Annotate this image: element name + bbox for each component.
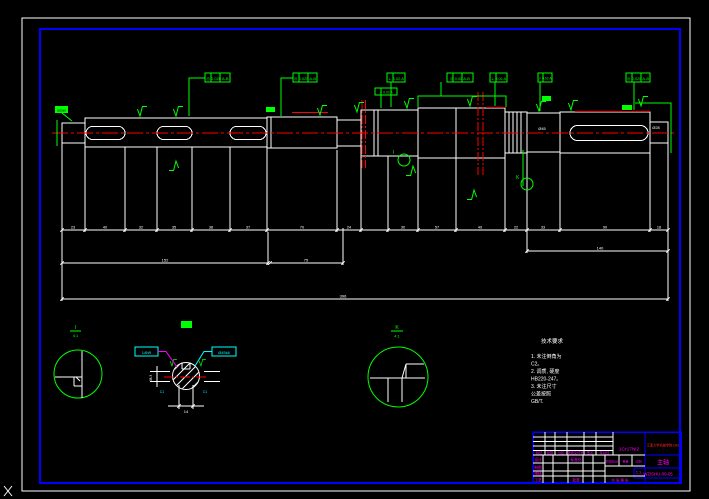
note-line: 1. 未注倒角为 <box>531 353 562 360</box>
left-end-dim-value: Ø25k6 <box>57 108 66 112</box>
roughness-icon <box>467 190 477 200</box>
section-dim-box-right-value: Ø45k6 <box>218 350 231 355</box>
detail-2-label: K <box>395 325 399 331</box>
dim-value: 49 <box>478 226 482 230</box>
detail-balloon-2-label: K <box>516 175 520 181</box>
note-line: HB220-247。 <box>531 377 561 383</box>
keyway-width-dim: 14 <box>184 409 189 414</box>
note-line: 公差按照 <box>531 391 551 398</box>
dim-value: 40 <box>103 226 107 230</box>
rev-col-label: 更改文件号 <box>568 450 584 455</box>
crosshair-cursor-icon[interactable] <box>4 486 12 496</box>
sig-row-label: 设计 <box>534 457 542 462</box>
gdt-frame-1: ◎ 0.025 A-B <box>206 76 229 81</box>
gdt-frame-2: ◎ 0.025 A-B <box>294 76 317 81</box>
keyway-section-view: 14 38.3 14N9 Ø45k6 C1 C1 <box>135 347 236 414</box>
detail-1-label: I <box>75 325 76 331</box>
school-name: 江南大学机械学院1342 <box>647 443 680 448</box>
centerlines <box>52 92 676 175</box>
sheet-note: 共 张 第 张 <box>612 478 629 483</box>
dim-value: 23 <box>71 226 75 230</box>
sig-row-label: 工艺 <box>534 477 542 482</box>
outer-border <box>22 18 690 491</box>
gdt-frame-7: ◎ 0.025 A-B <box>627 76 650 81</box>
part-name: 主轴 <box>657 459 669 467</box>
dim-value: 38 <box>209 226 213 230</box>
dim-value: 22 <box>514 226 518 230</box>
detail-circle-1 <box>54 350 102 398</box>
dim-mid-1: 152 <box>162 258 169 263</box>
note-line: GB/T. <box>531 399 544 405</box>
roughness-icon <box>169 161 179 171</box>
sig-row-label-2: 标准化 <box>570 457 582 462</box>
roughness-icon <box>406 166 416 176</box>
rev-col-label: 签名 <box>587 450 593 455</box>
sig-row-label-2: 批准 <box>572 477 580 482</box>
dim-mid-3: 140 <box>597 246 604 251</box>
chamfer-note-left: C1 <box>160 390 165 394</box>
scale-label: 比例 <box>635 459 641 464</box>
roughness-icon <box>467 97 477 107</box>
section-hatching <box>165 355 207 397</box>
scale-value: 1:1 <box>636 470 642 475</box>
gdt-frame-5: ⊥ 0.02 A <box>491 77 507 81</box>
section-dim-box-left-value: 14N9 <box>142 350 152 355</box>
rev-col-label: 分区 <box>558 450 565 455</box>
dim-value: 35 <box>172 226 176 230</box>
gdt-frame-4: ◎ 0.02 A-B <box>450 76 470 81</box>
note-line: 2. 调质, 硬度 <box>531 368 559 375</box>
sig-row-label: 审核 <box>534 471 542 476</box>
technical-notes: 技术要求 1. 未注倒角为 C2。 2. 调质, 硬度 HB220-247。 3… <box>531 337 564 405</box>
dim-value: 57 <box>435 226 439 230</box>
dim-value: 70 <box>300 226 304 230</box>
roughness-icon <box>568 101 578 111</box>
note-line: 3. 未注尺寸 <box>531 383 557 390</box>
roughness-icon <box>317 106 327 116</box>
span-dimension-bracket <box>418 96 506 107</box>
roughness-icon <box>404 99 414 109</box>
dim-hub: Ø45 <box>538 126 546 131</box>
notes-title: 技术要求 <box>541 337 564 345</box>
dim-value: 33 <box>541 226 545 230</box>
dim-value: 32 <box>139 226 143 230</box>
green-annotations: Ø25k6 I K <box>55 96 671 328</box>
drawing-border <box>22 18 690 491</box>
rev-col-label: 标记 <box>536 450 543 455</box>
keyway-depth-dim: 38.3 <box>149 375 153 381</box>
detail-1-scale: 4:1 <box>73 333 79 338</box>
detail-view-2: K 4:1 <box>368 325 428 407</box>
detail-balloon-1-label: I <box>393 150 394 156</box>
roughness-icon <box>137 107 147 117</box>
cad-canvas[interactable]: 23 40 32 35 38 37 70 24 30 57 49 22 33 9… <box>0 0 709 499</box>
roughness-icon <box>173 107 183 117</box>
gdt-frame-3: ⊥ 0.02 A <box>388 76 404 81</box>
dim-value: 37 <box>246 226 250 230</box>
sig-row-label: 制图 <box>534 465 542 470</box>
datum-flag <box>622 105 632 110</box>
section-label-flag <box>181 321 192 328</box>
material-value: 1Cr17Ni2 <box>619 447 640 453</box>
rev-col-label: 处数 <box>547 450 554 455</box>
dim-value: 18 <box>657 226 661 230</box>
datum-flag <box>542 96 551 101</box>
roughness-icon <box>199 359 206 366</box>
roughness-icon <box>536 102 546 112</box>
gdt-frames: ◎ 0.025 A-B ◎ 0.025 A-B ⊥ 0.02 A ◎ 0.02 … <box>189 73 650 116</box>
dim-right-end: Ø28 <box>652 125 660 130</box>
cad-viewport[interactable]: 23 40 32 35 38 37 70 24 30 57 49 22 33 9… <box>0 0 709 499</box>
drawing-number: WZISHU-00-05 <box>643 471 673 476</box>
rev-col-label: 年月日 <box>600 450 610 455</box>
title-block: 1Cr17Ni2 江南大学机械学院1342 主轴 WZISHU-00-05 标记… <box>533 432 681 483</box>
dim-value: 90 <box>603 226 607 230</box>
dim-mid-2: 75 <box>304 258 309 263</box>
inner-blue-border <box>40 29 680 483</box>
dimension-chain: 23 40 32 35 38 37 70 24 30 57 49 22 33 9… <box>60 226 669 232</box>
dim-value: 30 <box>401 226 405 230</box>
note-line: C2。 <box>531 362 542 368</box>
dim-overall: 396 <box>340 294 347 299</box>
gdt-frame-6: ↗ 0.02 A <box>538 77 552 81</box>
dim-value: 24 <box>347 226 351 230</box>
detail-view-1: I 4:1 <box>54 325 102 398</box>
roughness-icon <box>354 103 364 113</box>
roughness-icon <box>638 97 648 107</box>
detail-2-scale: 4:1 <box>394 334 400 339</box>
chamfer-note-right: C1 <box>203 390 208 394</box>
cyan-leader <box>195 352 212 367</box>
datum-flag <box>266 107 275 112</box>
stage-label: 阶段标记 <box>606 459 618 464</box>
weight-label: 重量 <box>622 459 628 464</box>
detail-circle-2 <box>368 347 428 407</box>
